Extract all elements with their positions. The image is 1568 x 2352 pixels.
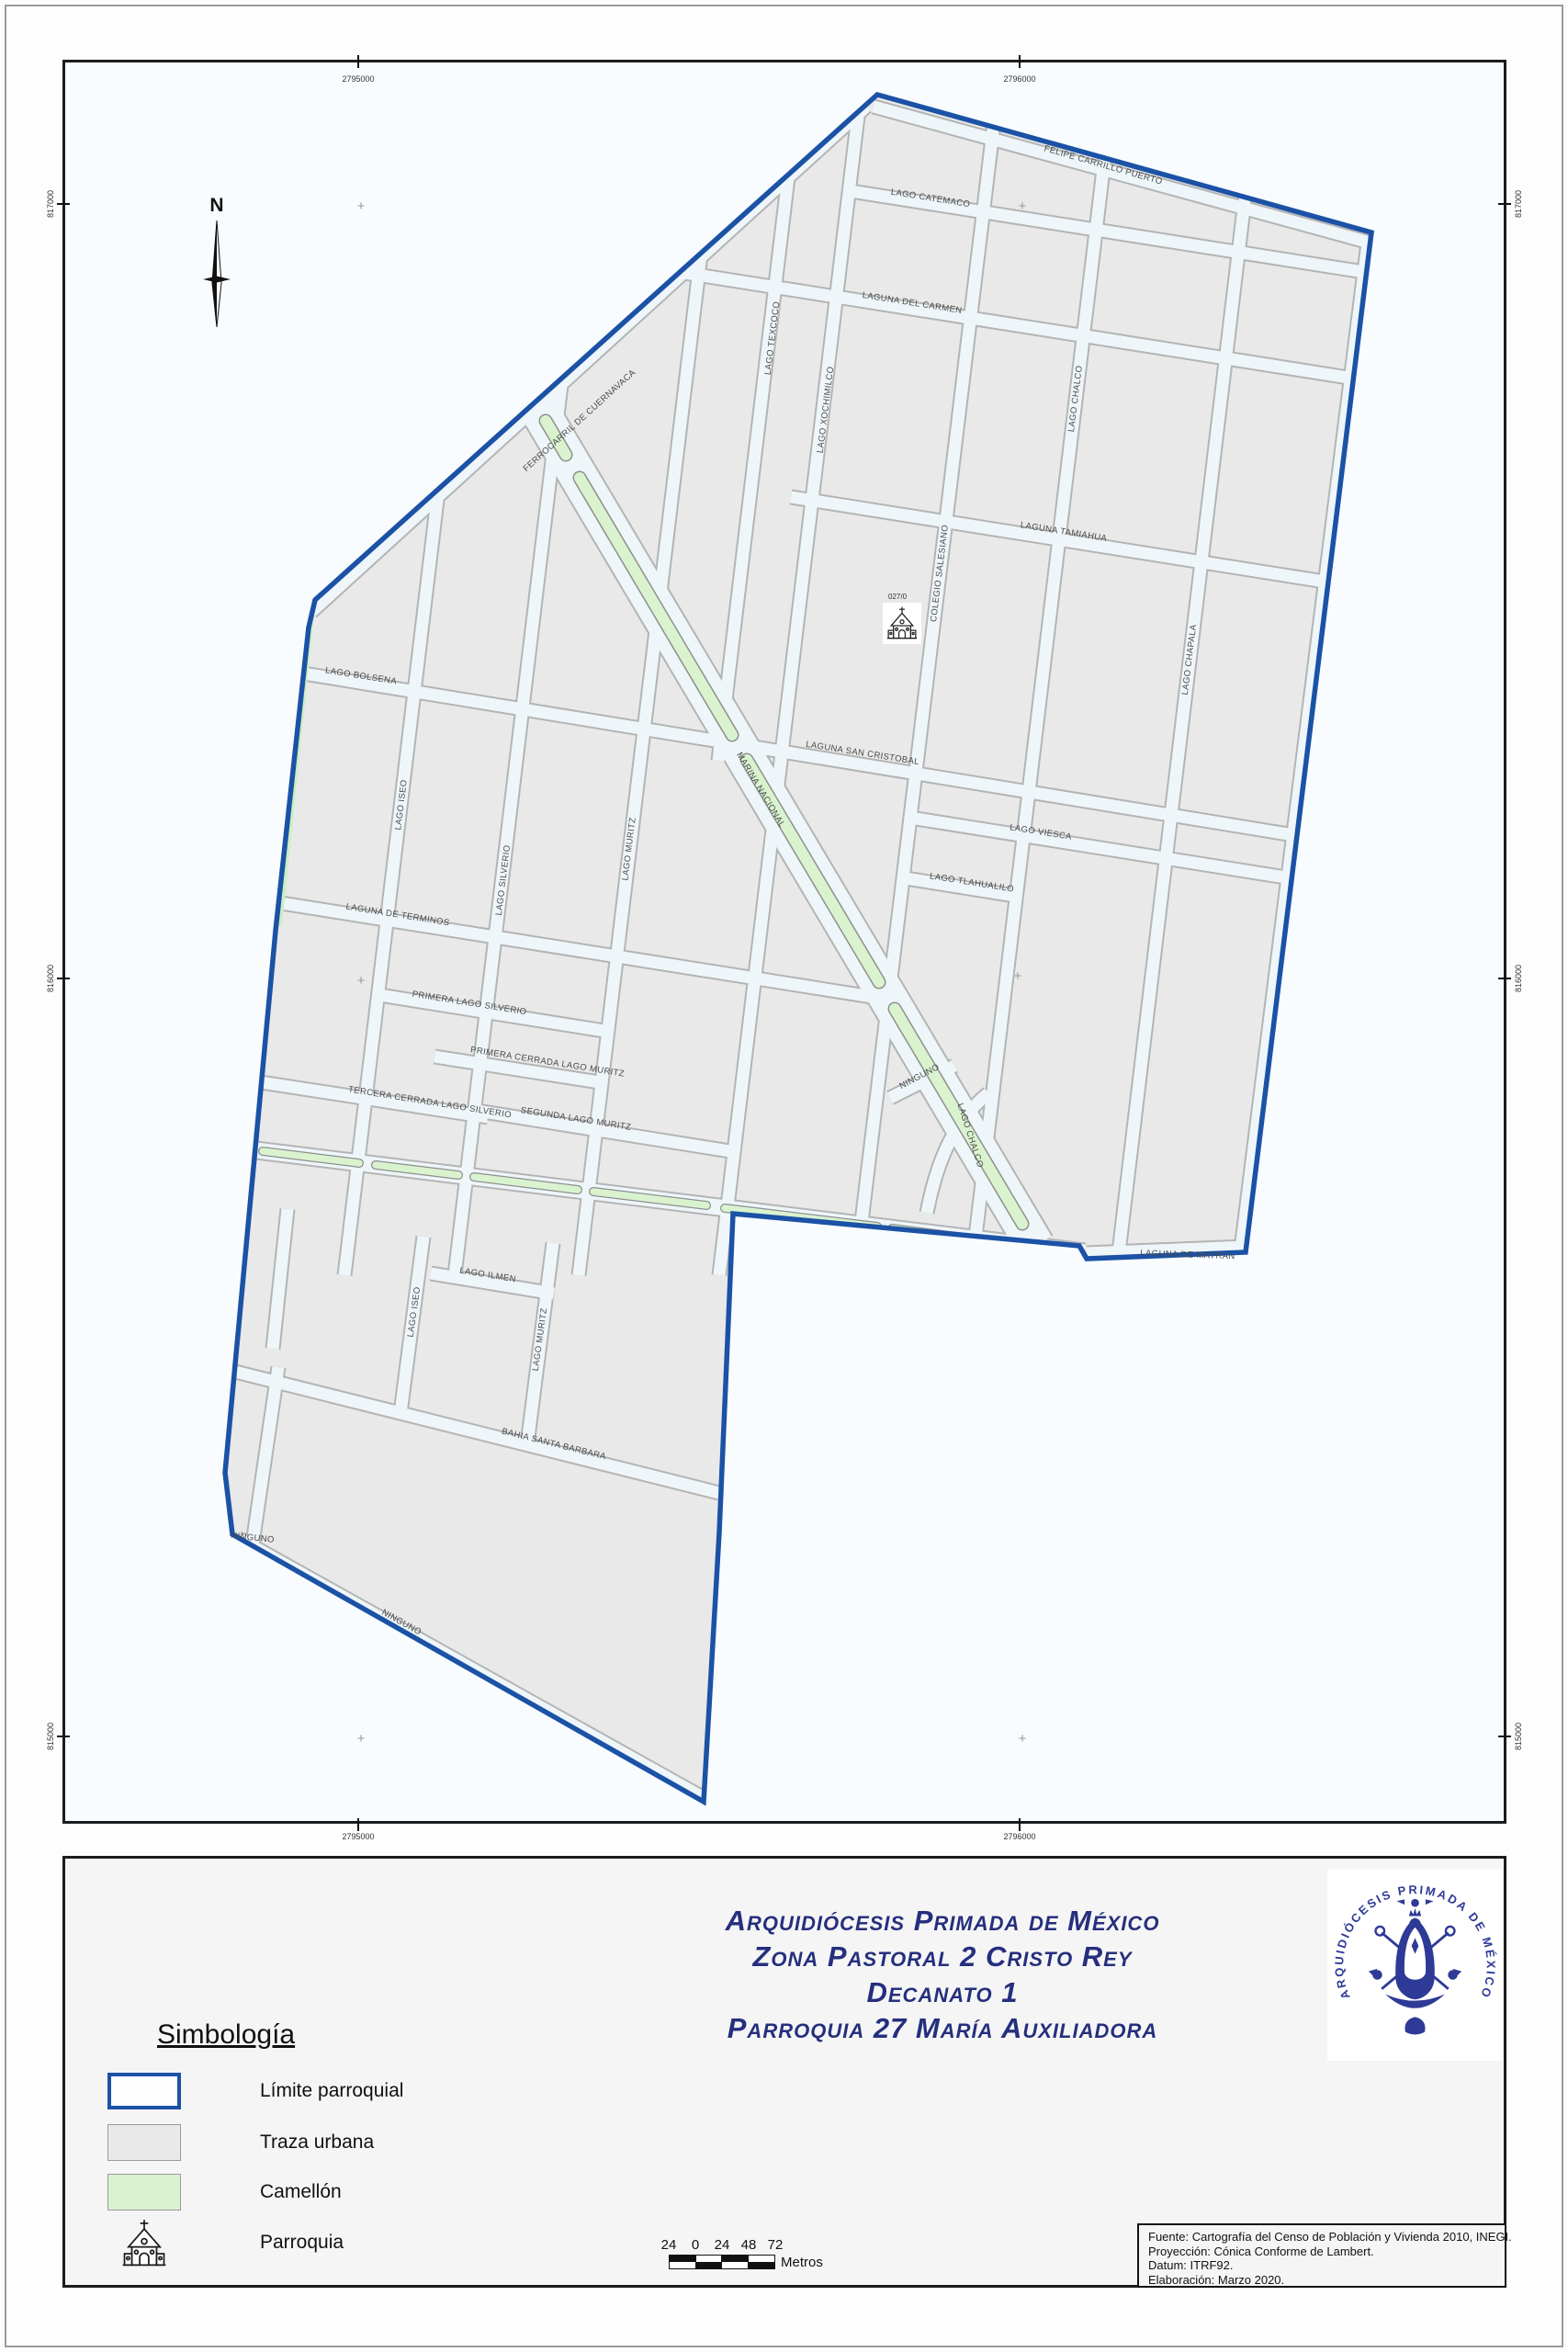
grid-coordinate-label: 817000: [46, 190, 55, 218]
map-title-block: Arquidiócesis Primada de México Zona Pas…: [506, 1903, 1379, 2046]
grid-cross-icon: +: [1015, 199, 1030, 214]
scale-tick-label: 48: [741, 2237, 757, 2253]
scale-bar-graphic: [669, 2255, 775, 2269]
archdiocese-seal-logo: ARQUIDIÓCESIS PRIMADA DE MÉXICO: [1327, 1870, 1503, 2061]
layout-panel: Simbología Límite parroquial Traza urban…: [62, 1856, 1506, 2288]
scale-unit-label: Metros: [781, 2255, 823, 2270]
camellon-swatch: [107, 2174, 181, 2211]
grid-coordinate-label: 2796000: [1003, 74, 1035, 84]
church-id-label: 027/0: [888, 593, 908, 601]
title-line-4: Parroquia 27 María Auxiliadora: [506, 2010, 1379, 2046]
scale-tick-label: 24: [715, 2237, 730, 2253]
legend-label: Camellón: [260, 2181, 342, 2203]
grid-tick: [357, 55, 359, 68]
church-icon: [121, 2219, 167, 2268]
grid-tick: [357, 1818, 359, 1831]
grid-tick: [1019, 1818, 1021, 1831]
grid-cross-icon: +: [354, 199, 368, 214]
north-arrow-icon: N: [203, 195, 231, 327]
title-line-2: Zona Pastoral 2 Cristo Rey: [506, 1939, 1379, 1974]
roundabout-road: [198, 1595, 281, 1678]
source-line-2: Proyección: Cónica Conforme de Lambert.: [1148, 2245, 1505, 2259]
north-label: N: [209, 195, 223, 216]
traza-urbana-swatch: [107, 2124, 181, 2161]
source-line-4: Elaboración: Marzo 2020.: [1148, 2273, 1505, 2288]
grid-tick: [57, 203, 70, 205]
urban-fabric: [198, 62, 1371, 1802]
grid-tick: [1498, 1736, 1511, 1737]
legend-heading: Simbología: [157, 2019, 295, 2051]
scale-tick-label: 72: [768, 2237, 784, 2253]
legend-label: Traza urbana: [260, 2131, 374, 2154]
grid-coordinate-label: 2796000: [1003, 1832, 1035, 1841]
grid-coordinate-label: 815000: [1514, 1723, 1523, 1750]
legend-label: Límite parroquial: [260, 2080, 403, 2102]
source-line-1: Fuente: Cartografía del Censo de Poblaci…: [1148, 2230, 1505, 2245]
grid-coordinate-label: 2795000: [342, 74, 374, 84]
grid-coordinate-label: 815000: [46, 1723, 55, 1750]
map-document: { "map": { "north_label": "N", "church":…: [0, 0, 1568, 2352]
grid-tick: [57, 978, 70, 979]
grid-tick: [1498, 203, 1511, 205]
scale-tick-label: 24: [661, 2237, 677, 2253]
limite-parroquial-swatch: [107, 2073, 181, 2109]
virgin-mary-emblem: [1369, 1899, 1461, 2035]
grid-tick: [1019, 55, 1021, 68]
grid-cross-icon: +: [354, 1732, 368, 1747]
title-line-3: Decanato 1: [506, 1974, 1379, 2010]
source-line-3: Datum: ITRF92.: [1148, 2258, 1505, 2273]
grid-coordinate-label: 817000: [1514, 190, 1523, 218]
scale-tick-label: 0: [692, 2237, 699, 2253]
grid-cross-icon: +: [1010, 969, 1025, 984]
grid-coordinate-label: 2795000: [342, 1832, 374, 1841]
grid-coordinate-label: 816000: [1514, 965, 1523, 992]
roundabout-green: [210, 1607, 269, 1666]
grid-cross-icon: +: [1015, 1732, 1030, 1747]
grid-tick: [1498, 978, 1511, 979]
grid-tick: [57, 1736, 70, 1737]
grid-cross-icon: +: [354, 974, 368, 989]
grid-coordinate-label: 816000: [46, 965, 55, 992]
source-info-box: Fuente: Cartografía del Censo de Poblaci…: [1137, 2223, 1506, 2288]
title-line-1: Arquidiócesis Primada de México: [506, 1903, 1379, 1939]
legend-label: Parroquia: [260, 2232, 344, 2254]
parish-map-canvas: N 027/0: [65, 62, 1504, 1821]
map-frame: N 027/0 FELIPE CARRILLO PUERTOFERROCARRI…: [62, 60, 1506, 1824]
